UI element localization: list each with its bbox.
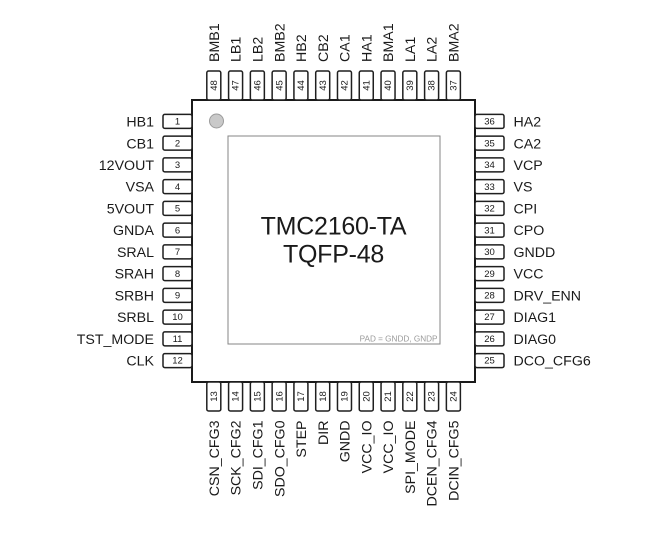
svg-text:DCEN_CFG4: DCEN_CFG4 [425, 420, 441, 506]
svg-text:GNDD: GNDD [514, 245, 556, 261]
svg-text:12VOUT: 12VOUT [99, 158, 155, 174]
svg-text:20: 20 [361, 391, 372, 402]
svg-text:44: 44 [296, 80, 307, 91]
svg-text:TQFP-48: TQFP-48 [283, 240, 384, 268]
svg-text:36: 36 [484, 117, 495, 128]
svg-text:HA2: HA2 [514, 115, 542, 131]
svg-text:47: 47 [231, 80, 242, 91]
svg-text:LA2: LA2 [425, 37, 441, 62]
svg-text:24: 24 [449, 391, 460, 402]
svg-text:5VOUT: 5VOUT [107, 201, 155, 217]
svg-text:25: 25 [484, 356, 495, 367]
svg-text:TST_MODE: TST_MODE [77, 332, 154, 348]
svg-text:26: 26 [484, 334, 495, 345]
svg-text:40: 40 [383, 80, 394, 91]
svg-text:37: 37 [449, 80, 460, 91]
svg-text:TMC2160-TA: TMC2160-TA [261, 213, 407, 241]
svg-text:22: 22 [405, 391, 416, 402]
svg-text:43: 43 [318, 80, 329, 91]
svg-text:VSA: VSA [126, 180, 155, 196]
svg-text:13: 13 [209, 391, 220, 402]
svg-text:LA1: LA1 [403, 37, 419, 62]
svg-text:42: 42 [340, 80, 351, 91]
svg-text:PAD = GNDD, GNDP: PAD = GNDD, GNDP [360, 335, 438, 344]
svg-text:CLK: CLK [126, 354, 154, 370]
svg-text:4: 4 [175, 182, 180, 193]
svg-text:CA2: CA2 [514, 136, 542, 152]
svg-text:38: 38 [427, 80, 438, 91]
svg-text:DIAG0: DIAG0 [514, 332, 557, 348]
svg-text:23: 23 [427, 391, 438, 402]
svg-text:10: 10 [172, 312, 183, 323]
svg-text:11: 11 [173, 334, 183, 345]
svg-text:SCK_CFG2: SCK_CFG2 [229, 420, 245, 495]
svg-text:15: 15 [252, 391, 263, 402]
svg-text:29: 29 [484, 269, 495, 280]
svg-text:BMA2: BMA2 [446, 23, 462, 62]
svg-text:DRV_ENN: DRV_ENN [514, 288, 582, 304]
svg-text:30: 30 [484, 247, 495, 258]
svg-text:46: 46 [252, 80, 263, 91]
svg-text:7: 7 [175, 247, 180, 258]
svg-text:BMB1: BMB1 [207, 23, 223, 62]
svg-text:VCP: VCP [514, 158, 543, 174]
svg-text:SRBH: SRBH [115, 288, 154, 304]
svg-text:SRBL: SRBL [117, 310, 154, 326]
svg-text:CA1: CA1 [338, 34, 354, 62]
svg-text:VCC_IO: VCC_IO [359, 421, 375, 474]
svg-text:48: 48 [209, 80, 220, 91]
svg-text:35: 35 [484, 138, 495, 149]
svg-text:DIAG1: DIAG1 [514, 310, 557, 326]
svg-text:HB1: HB1 [126, 115, 154, 131]
svg-text:32: 32 [484, 204, 495, 215]
svg-text:8: 8 [175, 269, 180, 280]
svg-text:3: 3 [175, 160, 180, 171]
svg-text:LB1: LB1 [229, 37, 245, 62]
svg-text:27: 27 [484, 312, 495, 323]
svg-text:1: 1 [175, 117, 180, 128]
svg-text:6: 6 [175, 225, 180, 236]
svg-text:CB2: CB2 [316, 34, 332, 62]
svg-text:12: 12 [172, 356, 183, 367]
svg-text:2: 2 [175, 138, 180, 149]
svg-text:39: 39 [405, 80, 416, 91]
svg-text:CPI: CPI [514, 201, 538, 217]
svg-text:HB2: HB2 [294, 34, 310, 62]
svg-text:BMA1: BMA1 [381, 23, 397, 62]
svg-text:VS: VS [514, 180, 533, 196]
svg-text:DCO_CFG6: DCO_CFG6 [514, 354, 591, 370]
svg-text:9: 9 [175, 290, 180, 301]
svg-text:BMB2: BMB2 [272, 23, 288, 62]
svg-text:GNDD: GNDD [338, 421, 354, 463]
svg-text:CB1: CB1 [126, 136, 154, 152]
svg-text:19: 19 [340, 391, 351, 402]
svg-text:CPO: CPO [514, 223, 545, 239]
svg-text:34: 34 [484, 160, 495, 171]
svg-text:CSN_CFG3: CSN_CFG3 [207, 420, 223, 496]
svg-text:DIR: DIR [316, 421, 332, 445]
svg-text:GNDA: GNDA [113, 223, 155, 239]
svg-text:LB2: LB2 [250, 37, 266, 62]
svg-text:VCC_IO: VCC_IO [381, 421, 397, 474]
svg-text:SDI_CFG1: SDI_CFG1 [250, 420, 266, 489]
svg-text:14: 14 [231, 391, 242, 402]
svg-text:45: 45 [274, 80, 285, 91]
svg-text:SDO_CFG0: SDO_CFG0 [272, 420, 288, 497]
svg-text:18: 18 [318, 391, 329, 402]
svg-text:SPI_MODE: SPI_MODE [403, 421, 419, 494]
svg-text:17: 17 [296, 391, 307, 402]
svg-text:5: 5 [175, 204, 180, 215]
svg-text:STEP: STEP [294, 421, 310, 458]
svg-text:31: 31 [484, 225, 495, 236]
svg-text:41: 41 [361, 80, 372, 91]
svg-text:DCIN_CFG5: DCIN_CFG5 [446, 420, 462, 501]
svg-text:28: 28 [484, 290, 495, 301]
svg-text:16: 16 [274, 391, 285, 402]
svg-text:HA1: HA1 [359, 34, 375, 62]
svg-text:21: 21 [383, 391, 394, 402]
svg-text:SRAL: SRAL [117, 245, 154, 261]
svg-text:SRAH: SRAH [115, 267, 154, 283]
svg-text:VCC: VCC [514, 267, 544, 283]
svg-text:33: 33 [484, 182, 495, 193]
